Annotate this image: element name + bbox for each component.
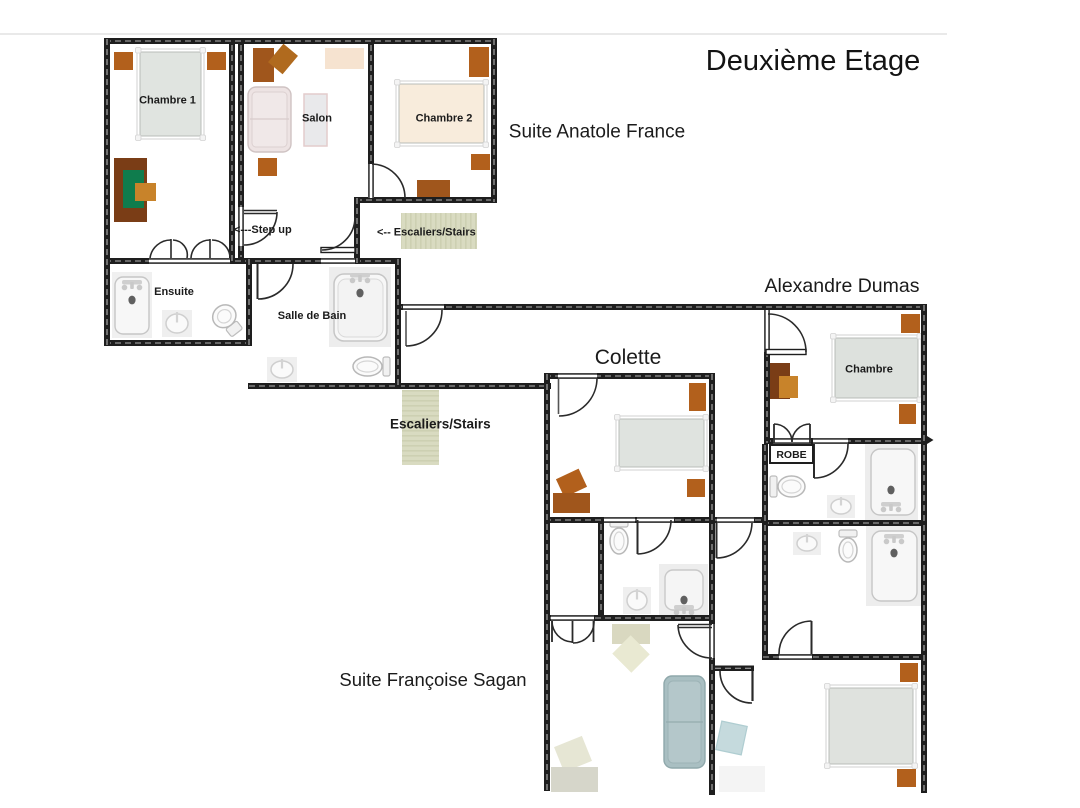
svg-text:Deuxième Etage: Deuxième Etage <box>706 45 920 77</box>
svg-text:Suite Françoise Sagan: Suite Françoise Sagan <box>339 669 526 690</box>
svg-text:ROBE: ROBE <box>776 449 806 461</box>
svg-text:<-- Escaliers/Stairs: <-- Escaliers/Stairs <box>377 227 476 239</box>
svg-text:<---Step up: <---Step up <box>234 224 292 236</box>
svg-text:Alexandre Dumas: Alexandre Dumas <box>765 275 920 297</box>
svg-text:Suite Anatole France: Suite Anatole France <box>509 122 685 143</box>
svg-text:Chambre 1: Chambre 1 <box>139 95 196 107</box>
svg-text:Salle de Bain: Salle de Bain <box>278 310 347 322</box>
svg-text:Chambre 2: Chambre 2 <box>416 113 473 125</box>
svg-text:Chambre: Chambre <box>845 364 893 376</box>
svg-text:Escaliers/Stairs: Escaliers/Stairs <box>390 417 491 432</box>
svg-text:Salon: Salon <box>302 113 332 125</box>
svg-text:Ensuite: Ensuite <box>154 286 194 298</box>
svg-text:Colette: Colette <box>595 346 662 369</box>
